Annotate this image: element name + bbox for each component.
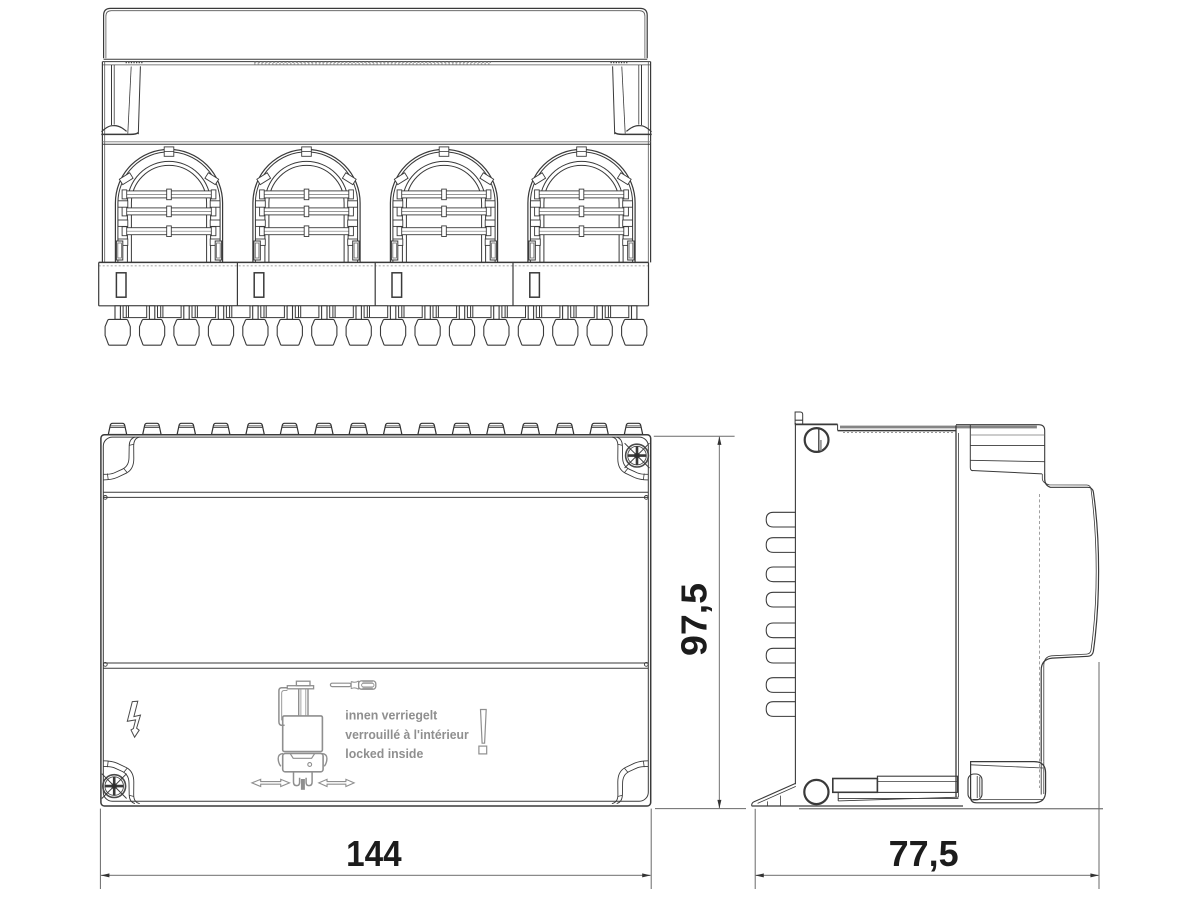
svg-text:97,5: 97,5: [674, 583, 715, 656]
svg-text:verrouillé à l'intérieur: verrouillé à l'intérieur: [345, 728, 468, 742]
svg-text:144: 144: [346, 833, 402, 874]
svg-text:locked inside: locked inside: [345, 747, 423, 761]
svg-text:77,5: 77,5: [889, 833, 959, 874]
svg-text:innen verriegelt: innen verriegelt: [345, 708, 438, 722]
